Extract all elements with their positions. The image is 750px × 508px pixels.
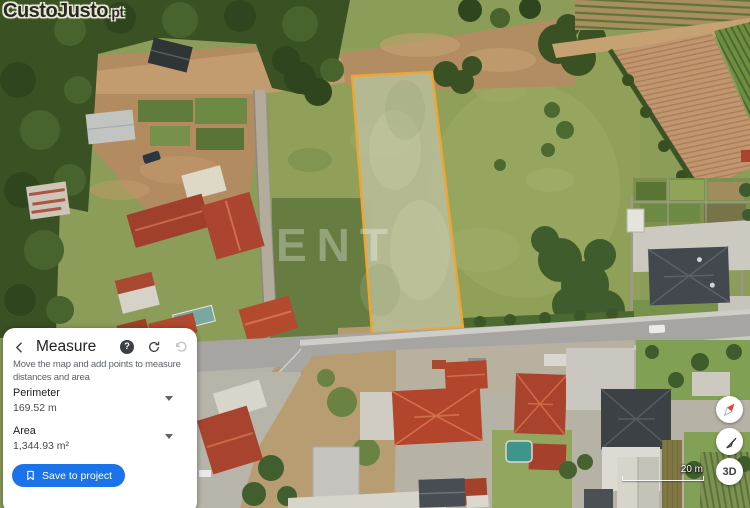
perimeter-label: Perimeter [13, 387, 187, 399]
area-expand-caret[interactable] [165, 434, 173, 439]
panel-description: Move the map and add points to measure d… [13, 359, 194, 384]
panel-title: Measure [36, 338, 96, 356]
bookmark-icon [25, 470, 36, 481]
perimeter-expand-caret[interactable] [165, 396, 173, 401]
panel-header: Measure ? [13, 336, 188, 358]
my-location-button[interactable] [716, 428, 743, 455]
help-icon: ? [120, 340, 134, 354]
back-button[interactable] [13, 341, 26, 354]
perimeter-value: 169.52 m [13, 402, 187, 414]
refresh-icon [147, 340, 161, 354]
area-row: Area 1,344.93 m² [13, 425, 187, 452]
area-value: 1,344.93 m² [13, 440, 187, 452]
help-button[interactable]: ? [120, 340, 134, 354]
refresh-button[interactable] [147, 340, 161, 354]
back-arrow-icon [13, 341, 26, 354]
3d-label: 3D [722, 466, 736, 478]
undo-button[interactable] [174, 340, 188, 354]
compass-icon [719, 399, 740, 420]
perimeter-row: Perimeter 169.52 m [13, 387, 187, 414]
measure-panel: Measure ? Move t [3, 328, 197, 508]
save-to-project-button[interactable]: Save to project [12, 464, 125, 487]
custojusto-logo: CustoJusto.pt [3, 0, 124, 23]
dark-roof-house [601, 389, 671, 449]
3d-view-button[interactable]: 3D [716, 458, 743, 485]
my-location-icon [721, 433, 739, 451]
compass-button[interactable] [716, 396, 743, 423]
area-label: Area [13, 425, 187, 437]
earth-app-window: ENT CustoJusto.pt Measure ? [0, 0, 750, 508]
undo-icon [174, 340, 188, 354]
